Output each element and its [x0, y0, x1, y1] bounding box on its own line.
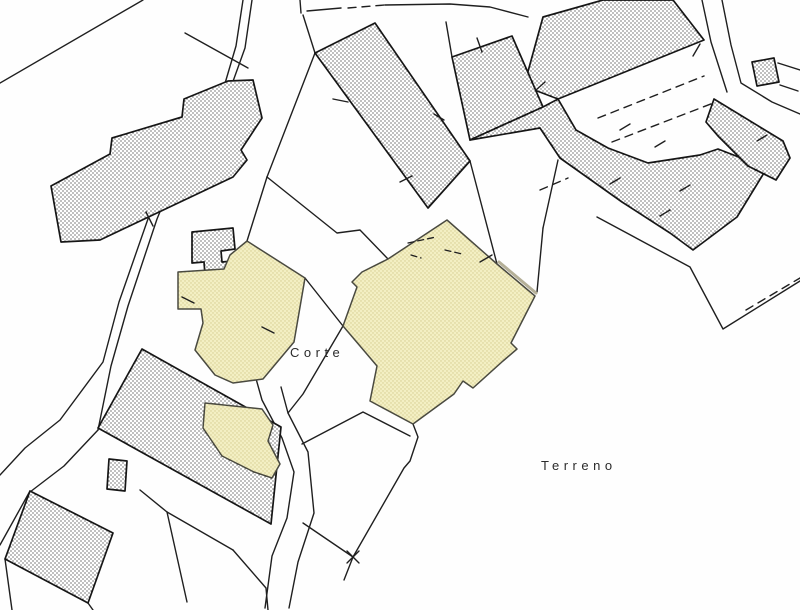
boundary-bottom-3 — [233, 550, 268, 610]
boundary-bottom-1 — [140, 490, 233, 550]
survey-tick-mark — [693, 44, 700, 56]
survey-tick-mark — [333, 99, 348, 102]
boundary-south-west — [303, 523, 353, 557]
cadastral-map: CorteTerreno — [0, 0, 800, 610]
boundary-top-run-2 — [385, 4, 528, 17]
boundary-offset-south — [302, 412, 410, 444]
building-topright-band — [524, 0, 704, 99]
boundary-b2-connector — [303, 15, 315, 53]
boundary-below-b-1 — [5, 559, 12, 610]
boundary-right-of-parcel — [537, 228, 543, 292]
boundary-c2-connector — [446, 22, 452, 57]
map-label-terreno: Terreno — [541, 458, 617, 473]
boundary-top-run-1 — [307, 8, 341, 11]
boundary-below-b-2 — [88, 603, 93, 610]
building-topright-square — [752, 58, 779, 86]
road-curve-east-edge — [281, 387, 314, 608]
dashes-upper-right-a — [598, 76, 704, 118]
map-label-corte: Corte — [290, 345, 344, 360]
boundary-top-stub — [300, 0, 301, 13]
boundary-south-jagged — [353, 424, 418, 557]
dashes-lower-right — [746, 278, 800, 310]
boundary-vertex-to-corte — [247, 177, 267, 241]
building-bottomleft-annex — [107, 459, 127, 491]
boundary-right-up — [543, 160, 558, 228]
building-top-center — [315, 23, 470, 208]
cadastral-map-frame: CorteTerreno — [0, 0, 800, 610]
dashes-upper-right-b — [612, 102, 716, 142]
boundary-corte-2 — [288, 326, 343, 413]
square-bracket-2 — [780, 85, 798, 91]
boundary-to-building-b — [30, 430, 98, 492]
square-bracket-1 — [778, 63, 800, 70]
boundary-south-tail — [344, 557, 353, 580]
boundary-topleft-short — [185, 33, 248, 68]
road-topright-east — [722, 0, 800, 114]
boundary-vertex-up — [267, 53, 315, 177]
boundary-bottom-2 — [167, 512, 187, 602]
boundary-top-run-dashed — [348, 5, 385, 8]
highlighted-parcels-layer — [178, 220, 535, 478]
building-upper-left-stepped — [51, 80, 262, 242]
boundary-topleft-long — [0, 0, 143, 83]
road-topright-west — [702, 0, 727, 92]
highlight-parcel-center[interactable] — [343, 220, 535, 424]
boundary-vertex-east — [267, 177, 388, 259]
survey-tick-mark — [655, 141, 665, 147]
survey-tick-mark — [620, 124, 630, 130]
boundary-corte-1 — [305, 278, 343, 326]
